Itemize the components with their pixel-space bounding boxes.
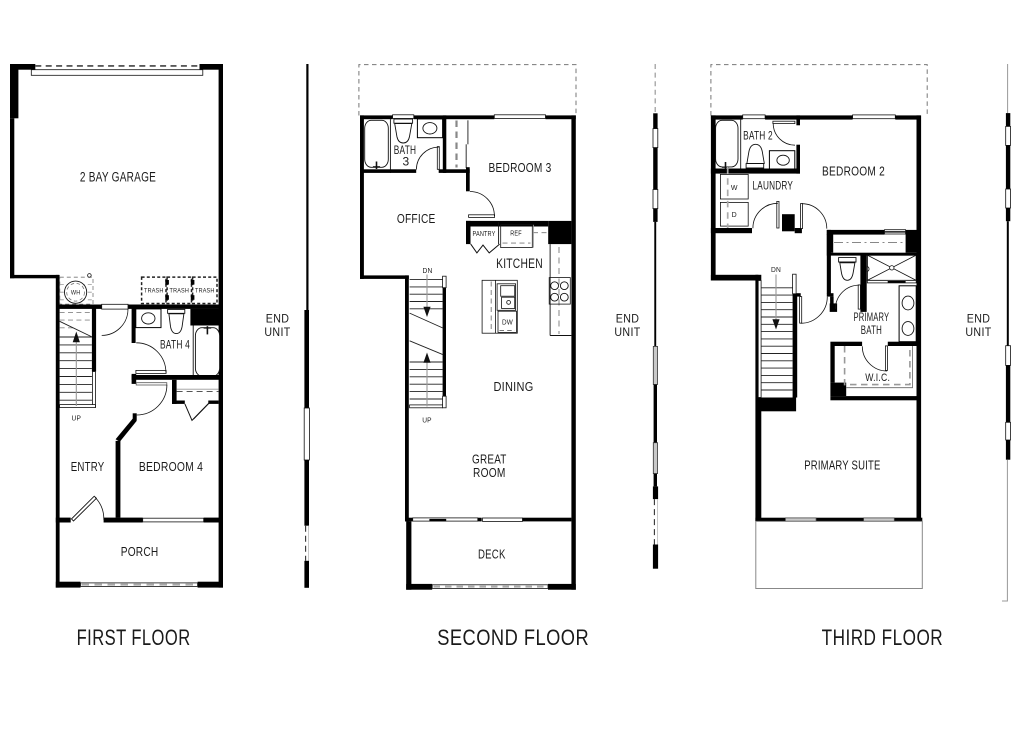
svg-text:W.I.C.: W.I.C. bbox=[865, 372, 890, 384]
svg-text:BATH 2: BATH 2 bbox=[743, 129, 773, 143]
svg-text:OFFICE: OFFICE bbox=[397, 211, 436, 226]
svg-text:3: 3 bbox=[403, 155, 410, 169]
svg-text:PANTRY: PANTRY bbox=[473, 231, 496, 238]
svg-text:DECK: DECK bbox=[478, 547, 506, 562]
svg-text:LAUNDRY: LAUNDRY bbox=[753, 181, 794, 193]
svg-text:KITCHEN: KITCHEN bbox=[496, 256, 543, 271]
svg-text:TRASH: TRASH bbox=[170, 288, 190, 295]
svg-text:TRASH: TRASH bbox=[144, 288, 164, 295]
svg-text:DINING: DINING bbox=[493, 380, 533, 394]
svg-text:UP: UP bbox=[422, 416, 432, 425]
svg-text:BATH: BATH bbox=[861, 323, 882, 337]
svg-text:PORCH: PORCH bbox=[121, 544, 159, 559]
svg-text:END: END bbox=[266, 311, 290, 325]
svg-text:BEDROOM 4: BEDROOM 4 bbox=[139, 459, 203, 474]
svg-text:WH: WH bbox=[71, 290, 81, 297]
svg-text:W: W bbox=[731, 185, 738, 192]
svg-text:SECOND FLOOR: SECOND FLOOR bbox=[437, 625, 589, 650]
svg-text:BEDROOM 2: BEDROOM 2 bbox=[822, 164, 885, 179]
svg-text:ENTRY: ENTRY bbox=[71, 459, 105, 474]
svg-text:DN: DN bbox=[423, 266, 433, 275]
svg-text:ROOM: ROOM bbox=[473, 465, 506, 480]
svg-text:UNIT: UNIT bbox=[965, 325, 991, 339]
svg-text:PRIMARY SUITE: PRIMARY SUITE bbox=[804, 457, 880, 472]
svg-text:D: D bbox=[732, 212, 737, 219]
svg-text:UP: UP bbox=[72, 414, 82, 423]
svg-text:UNIT: UNIT bbox=[614, 325, 640, 339]
svg-text:PRIMARY: PRIMARY bbox=[854, 310, 890, 324]
svg-text:DN: DN bbox=[771, 265, 781, 274]
svg-text:END: END bbox=[967, 311, 991, 325]
svg-text:DW: DW bbox=[502, 320, 513, 327]
svg-text:TRASH: TRASH bbox=[195, 288, 215, 295]
svg-text:FIRST FLOOR: FIRST FLOOR bbox=[77, 625, 191, 650]
svg-text:REF: REF bbox=[510, 231, 522, 238]
svg-text:UNIT: UNIT bbox=[264, 325, 290, 339]
svg-text:THIRD FLOOR: THIRD FLOOR bbox=[822, 625, 944, 650]
svg-text:BEDROOM 3: BEDROOM 3 bbox=[489, 160, 552, 175]
svg-text:END: END bbox=[616, 311, 640, 325]
svg-text:BATH 4: BATH 4 bbox=[160, 338, 190, 352]
svg-text:2 BAY GARAGE: 2 BAY GARAGE bbox=[80, 170, 156, 185]
